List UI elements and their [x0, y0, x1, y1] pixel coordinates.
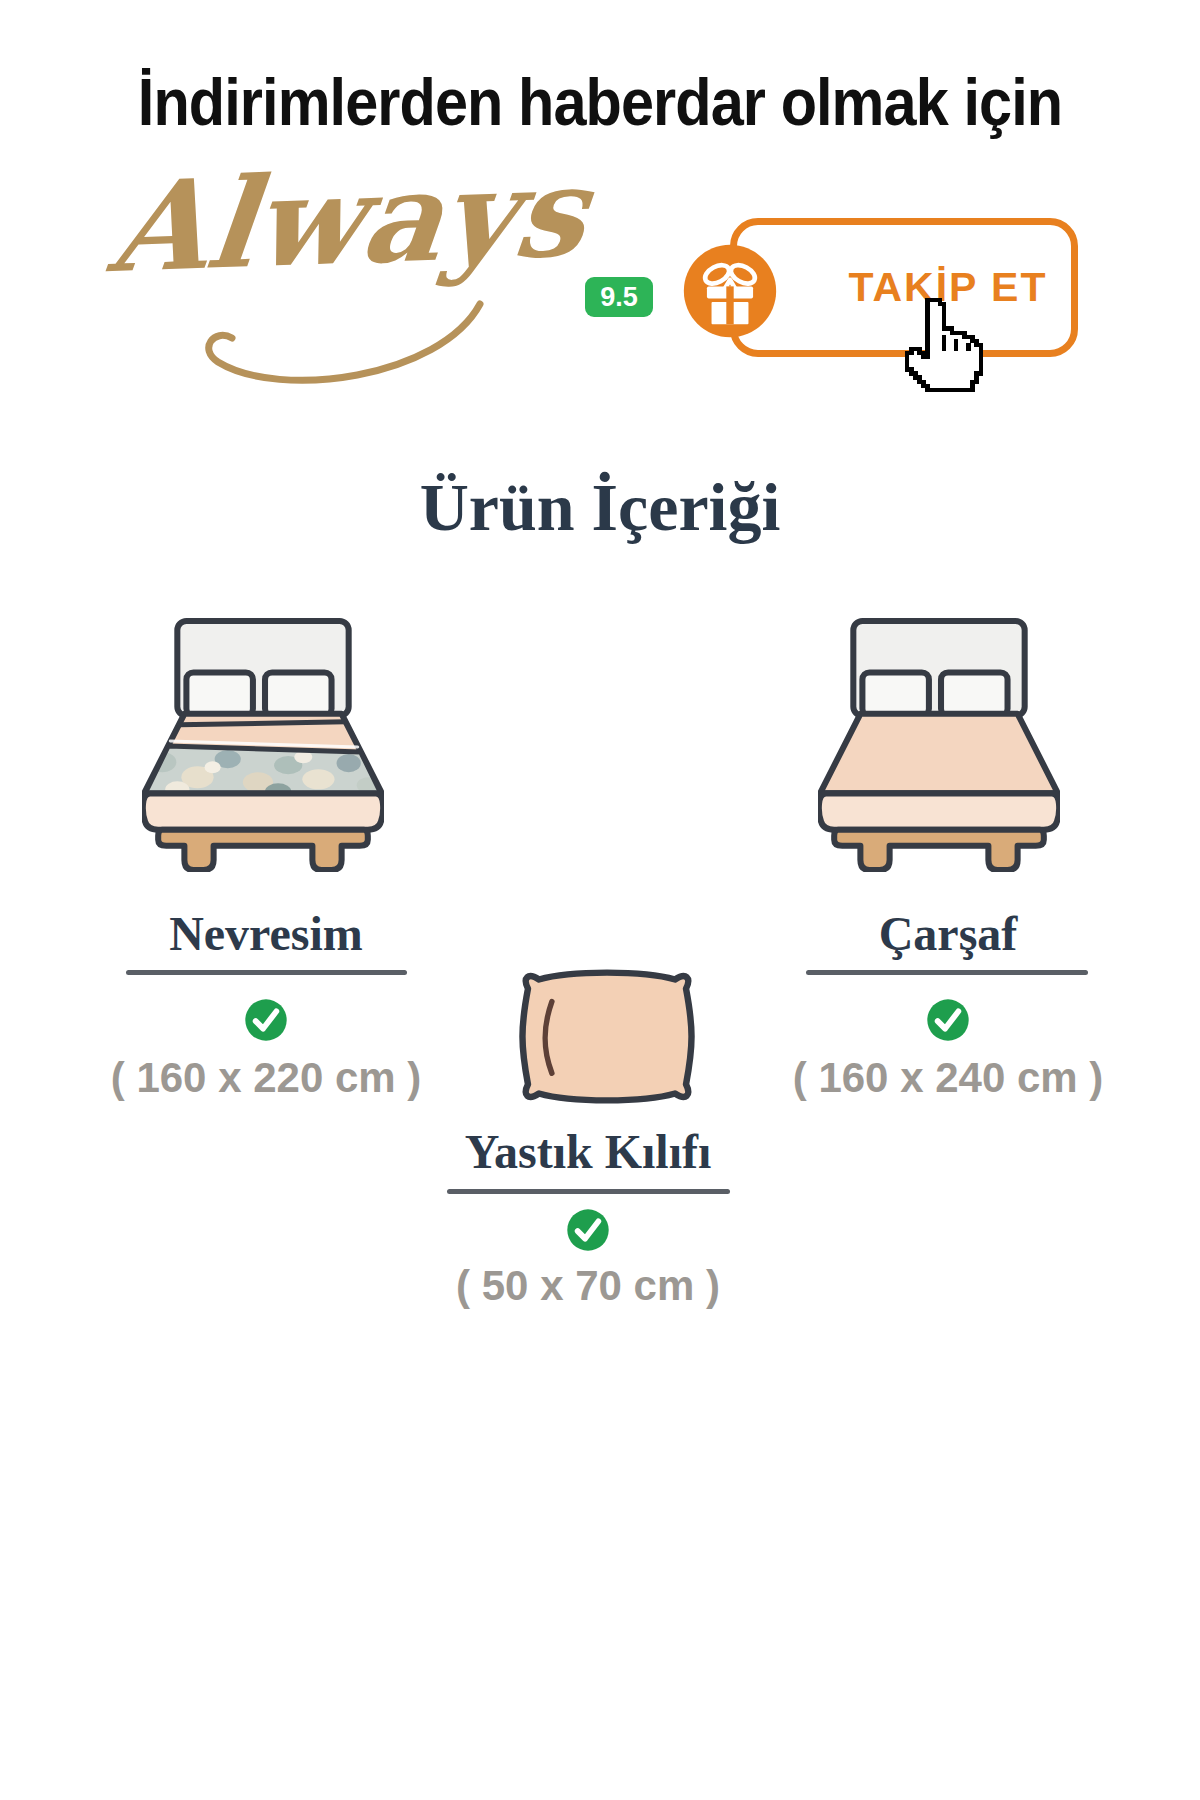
check-circle-icon	[243, 997, 289, 1043]
seller-logo: Always	[104, 150, 591, 290]
item-dimensions-yastik-kilifi: ( 50 x 70 cm )	[415, 1262, 761, 1310]
item-dimensions-nevresim: ( 160 x 220 cm )	[93, 1054, 439, 1102]
check-circle-icon	[925, 997, 971, 1043]
check-circle-icon	[565, 1207, 611, 1253]
discount-headline: İndirimlerden haberdar olmak için	[60, 64, 1140, 140]
hand-cursor-icon	[903, 296, 985, 394]
seller-rating-badge: 9.5	[585, 277, 653, 317]
logo-flourish	[168, 298, 498, 403]
item-dimensions-carsaf: ( 160 x 240 cm )	[775, 1054, 1121, 1102]
pillow-illustration	[515, 963, 699, 1110]
item-label-carsaf: Çarşaf	[798, 906, 1098, 961]
item-label-nevresim: Nevresim	[116, 906, 416, 961]
item-label-yastik-kilifi: Yastık Kılıfı	[438, 1124, 738, 1179]
section-title: Ürün İçeriği	[0, 468, 1200, 547]
flat-sheet-bed-illustration	[818, 616, 1060, 872]
duvet-bed-illustration	[142, 616, 384, 872]
item-rule-nevresim	[126, 970, 407, 975]
item-rule-yastik-kilifi	[447, 1189, 730, 1194]
gift-icon[interactable]	[682, 243, 778, 339]
product-content-banner: İndirimlerden haberdar olmak için Always…	[0, 0, 1200, 1800]
item-rule-carsaf	[806, 970, 1088, 975]
